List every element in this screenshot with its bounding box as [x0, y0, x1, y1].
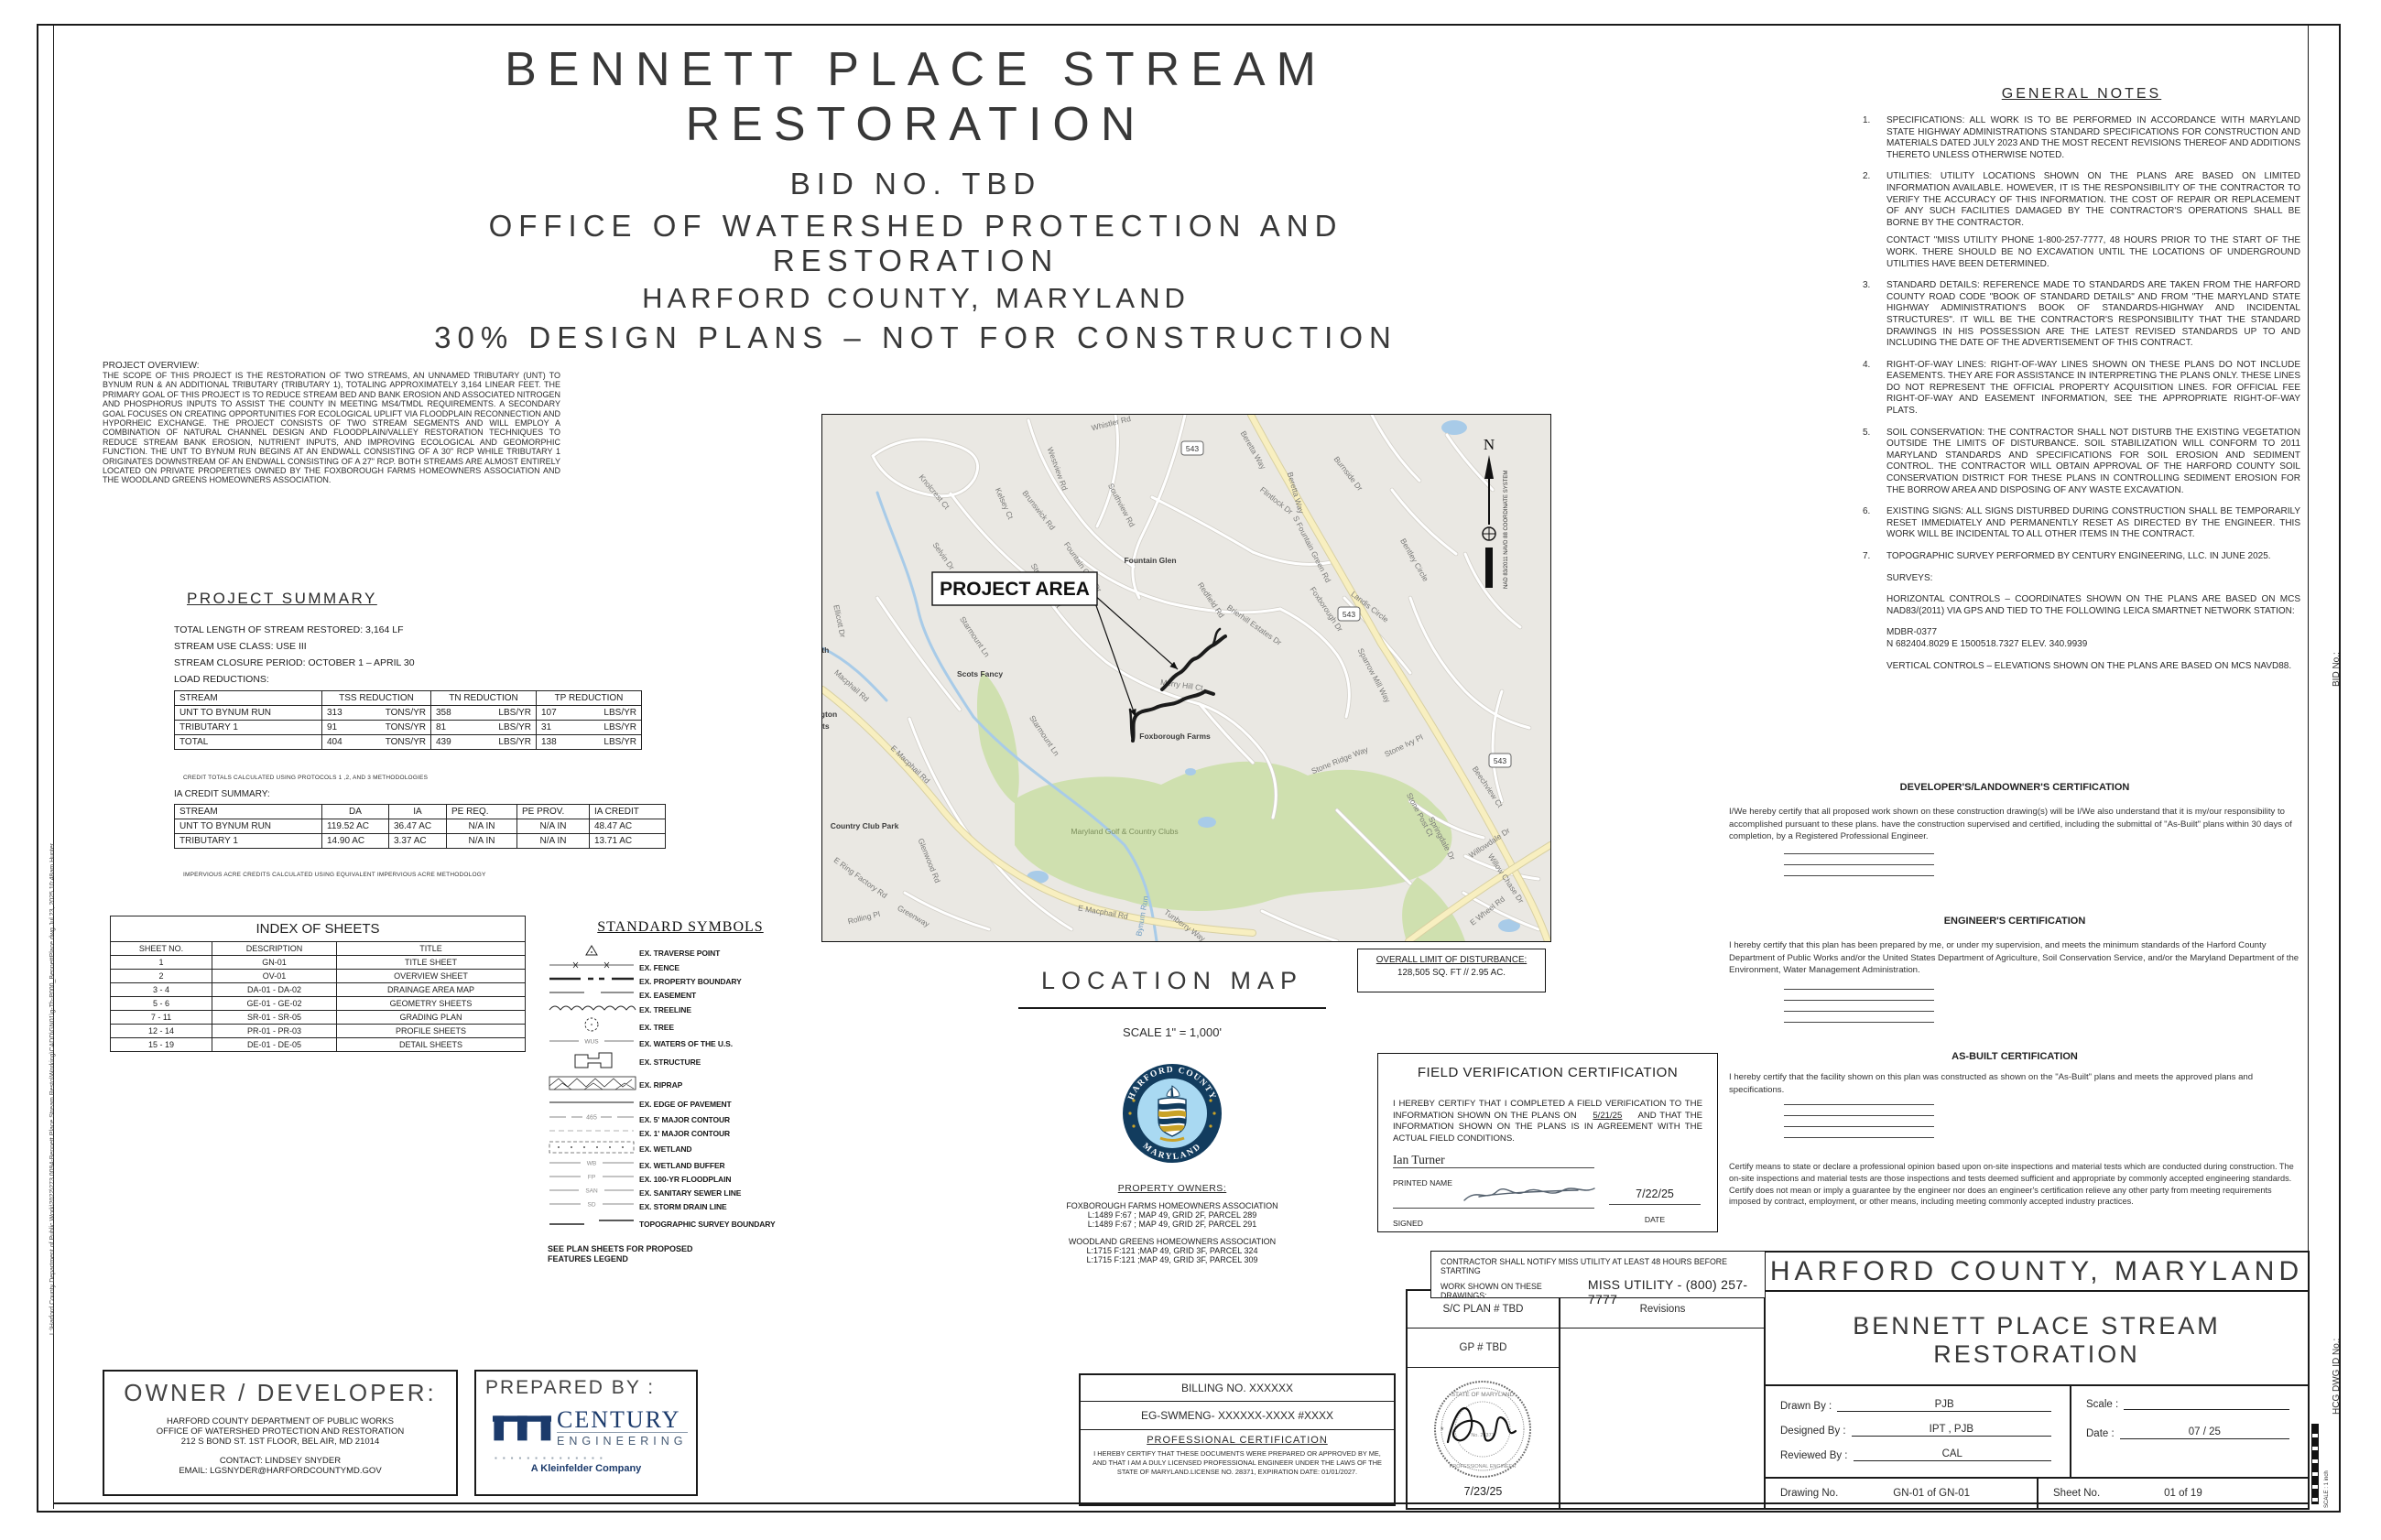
designed-by-row: Designed By :IPT , PJB [1780, 1424, 2051, 1437]
lod-box: OVERALL LIMIT OF DISTURBANCE: 128,505 SQ… [1357, 949, 1546, 992]
tb-county: HARFORD COUNTY, MARYLAND [1766, 1253, 2308, 1292]
sheet-title: BENNETT PLACE STREAM RESTORATION [385, 42, 1447, 152]
storm-drain-symbol: SD [548, 1198, 639, 1215]
miss-utility-phone: MISS UTILITY - (800) 257-7777 [1588, 1277, 1765, 1307]
ps-line-3: STREAM CLOSURE PERIOD: OCTOBER 1 – APRIL… [174, 657, 415, 668]
general-notes-title: GENERAL NOTES [2002, 86, 2161, 102]
general-note: 2.UTILITIES: UTILITY LOCATIONS SHOWN ON … [1863, 171, 2300, 229]
location-map-scale: SCALE 1" = 1,000' [1007, 1025, 1337, 1039]
legend-row: EX. STRUCTURE [548, 1050, 813, 1074]
billing-no: BILLING NO. XXXXXX [1081, 1375, 1394, 1402]
table-row: 15 - 19DE-01 - DE-05DETAIL SHEETS [111, 1038, 526, 1052]
lod-value: 128,505 SQ. FT // 2.95 AC. [1358, 968, 1545, 978]
svg-text:FP: FP [588, 1175, 595, 1181]
miss-utility-line2-label: WORK SHOWN ON THESE DRAWINGS: [1441, 1282, 1581, 1300]
harford-county-seal: HARFORD COUNTY MARYLAND [1121, 1062, 1223, 1165]
col-header: IA CREDIT [590, 805, 666, 819]
century-arch-icon [493, 1408, 551, 1452]
col-header: PE REQ. [447, 805, 517, 819]
fv-date-value: 7/22/25 [1609, 1188, 1701, 1200]
professional-cert-body: I HEREBY CERTIFY THAT THESE DOCUMENTS WE… [1088, 1449, 1386, 1477]
owner-line: L:1489 F:67 ; MAP 49, GRID 2F, PARCEL 29… [1035, 1220, 1310, 1229]
svg-text:SD: SD [587, 1202, 595, 1209]
logo-dots: ▪▪▪▪▪▪▪▪▪▪▪▪▪▪ [495, 1454, 696, 1462]
ps-line-4: LOAD REDUCTIONS: [174, 674, 269, 685]
location-map: 543 543 543 Fountain GlenScots FancyFoxb… [821, 414, 1551, 942]
property-owners-heading: PROPERTY OWNERS: [1035, 1183, 1310, 1194]
standard-symbols-title: STANDARD SYMBOLS [548, 919, 813, 936]
century-logo: CENTURY ENGINEERING [493, 1408, 696, 1452]
tb-project: BENNETT PLACE STREAM RESTORATION [1766, 1292, 2308, 1369]
title-sheet: L:\Harford County Department of Public W… [0, 0, 2381, 1540]
col-header: DESCRIPTION [212, 942, 337, 956]
project-summary-heading: PROJECT SUMMARY [187, 590, 377, 608]
survey-boundary-symbol [548, 1215, 639, 1234]
developer-signature-lines [1784, 853, 1934, 886]
location-map-title: LOCATION MAP [1007, 967, 1337, 995]
engineer-cert-title: ENGINEER'S CERTIFICATION [1729, 916, 2300, 927]
legend-row: EX. TREELINE [548, 1002, 813, 1017]
table-row: UNT TO BYNUM RUN 313TONS/YR 358LBS/YR 10… [175, 706, 642, 721]
surveys-label: SURVEYS: [1886, 573, 2300, 585]
engineer-cert-body: I hereby certify that this plan has been… [1729, 939, 2300, 977]
map-label: Country Club Park [831, 821, 899, 830]
field-verification-title: FIELD VERIFICATION CERTIFICATION [1378, 1065, 1717, 1080]
ia-table-footnote: IMPERVIOUS ACRE CREDITS CALCULATED USING… [183, 872, 486, 878]
gp-cell: GP # TBD [1408, 1329, 1559, 1368]
col-header: TITLE [337, 942, 526, 956]
map-label: Fountain Glen [1124, 556, 1176, 565]
svg-text:WUS: WUS [584, 1039, 599, 1046]
project-area-label: PROJECT AREA [940, 579, 1090, 600]
miss-utility-line1: CONTRACTOR SHALL NOTIFY MISS UTILITY AT … [1441, 1257, 1765, 1275]
billing-code: EG-SWMENG- XXXXXX-XXXX #XXXX [1081, 1402, 1394, 1430]
bid-no-label: BID No.: [2332, 652, 2342, 687]
developer-cert-title: DEVELOPER'S/LANDOWNER'S CERTIFICATION [1729, 782, 2300, 793]
sheet-no-value: 01 of 19 [2164, 1488, 2202, 1499]
vertical-controls-note: VERTICAL CONTROLS – ELEVATIONS SHOWN ON … [1886, 661, 2300, 673]
location-map-underline [1018, 1007, 1326, 1009]
owner-developer-heading: OWNER / DEVELOPER: [104, 1379, 456, 1407]
table-row: 7 - 11SR-01 - SR-05GRADING PLAN [111, 1011, 526, 1025]
owner-line: L:1715 F:121 ;MAP 49, GRID 3F, PARCEL 30… [1035, 1255, 1310, 1264]
index-of-sheets-table: INDEX OF SHEETS SHEET NO. DESCRIPTION TI… [110, 916, 526, 1052]
col-header: STREAM [175, 805, 322, 819]
legend-row: SD EX. STORM DRAIN LINE [548, 1199, 813, 1213]
bid-no-line: BID NO. TBD [385, 167, 1447, 201]
svg-text:543: 543 [1186, 444, 1199, 453]
owner-line: 212 S BOND ST. 1ST FLOOR, BEL AIR, MD 21… [104, 1437, 456, 1447]
col-header: PE PROV. [517, 805, 590, 819]
owner-name: FOXBOROUGH FARMS HOMEOWNERS ASSOCIATION [1035, 1201, 1310, 1210]
map-label: Heights [822, 721, 830, 731]
date-row: Date :07 / 25 [2086, 1426, 2289, 1439]
miss-utility-box: CONTRACTOR SHALL NOTIFY MISS UTILITY AT … [1430, 1251, 1766, 1298]
asbuilt-signature-lines [1784, 1104, 1934, 1148]
general-note: 1.SPECIFICATIONS: ALL WORK IS TO BE PERF… [1863, 115, 2300, 161]
svg-text:543: 543 [1494, 756, 1506, 765]
table-row: 12 - 14PR-01 - PR-03PROFILE SHEETS [111, 1025, 526, 1038]
title-block: HARFORD COUNTY, MARYLAND BENNETT PLACE S… [1764, 1251, 2310, 1510]
table-row: TRIBUTARY 1 91TONS/YR 81LBS/YR 31LBS/YR [175, 721, 642, 735]
datum-note: NAD 83/2011 NAVD 88 COORDINATE SYSTEM [1504, 471, 1509, 589]
table-row: TOTAL 404TONS/YR 439LBS/YR 138LBS/YR [175, 735, 642, 750]
prepared-by-heading: PREPARED BY : [485, 1377, 696, 1399]
ia-credit-table: STREAM DA IA PE REQ. PE PROV. IA CREDIT … [174, 804, 666, 849]
general-note: 3.STANDARD DETAILS: REFERENCE MADE TO ST… [1863, 280, 2300, 350]
general-note: 4.RIGHT-OF-WAY LINES: RIGHT-OF-WAY LINES… [1863, 360, 2300, 418]
map-label: Washington [822, 710, 837, 719]
table-row: UNT TO BYNUM RUN 119.52 AC 36.47 AC N/A … [175, 819, 666, 834]
drawing-no-value: GN-01 of GN-01 [1893, 1488, 1970, 1499]
fv-printed-name: Ian Turner [1393, 1153, 1594, 1167]
ps-line-2: STREAM USE CLASS: USE III [174, 641, 307, 652]
col-header: SHEET NO. [111, 942, 212, 956]
century-brand2: ENGINEERING [557, 1432, 688, 1448]
legend-row: TOPOGRAPHIC SURVEY BOUNDARY [548, 1213, 813, 1235]
tb-project-cell: BENNETT PLACE STREAM RESTORATION [1766, 1292, 2308, 1386]
table-row: TRIBUTARY 1 14.90 AC 3.37 AC N/A IN N/A … [175, 834, 666, 849]
svg-text:STATE OF MARYLAND: STATE OF MARYLAND [1451, 1392, 1515, 1398]
legend-row: EX. WETLAND [548, 1140, 813, 1158]
route-shield: 543 [1338, 607, 1360, 621]
edge-scale-label: SCALE : 1 inch [2324, 1470, 2330, 1508]
svg-text:543: 543 [1343, 610, 1355, 619]
horizontal-controls-note: HORIZONTAL CONTROLS – COORDINATES SHOWN … [1886, 594, 2300, 617]
col-header: STREAM [175, 691, 322, 706]
load-reductions-table: STREAM TSS REDUCTION TN REDUCTION TP RED… [174, 690, 642, 750]
office-line: OFFICE OF WATERSHED PROTECTION AND RESTO… [385, 209, 1447, 278]
drawing-no-label: Drawing No. [1780, 1488, 1838, 1499]
drawn-by-row: Drawn By :PJB [1780, 1399, 2051, 1412]
table-row: 2OV-01OVERVIEW SHEET [111, 970, 526, 983]
scale-row: Scale : [2086, 1399, 2289, 1410]
svg-text:WB: WB [587, 1161, 596, 1167]
owner-line: L:1715 F:121 ;MAP 49, GRID 3F, PARCEL 32… [1035, 1246, 1310, 1255]
century-brand: CENTURY [557, 1408, 688, 1432]
century-tagline: A Kleinfelder Company [476, 1463, 696, 1474]
prepared-by-box: PREPARED BY : CENTURY ENGINEERING ▪▪▪▪▪▪… [474, 1370, 698, 1496]
ps-line-1: TOTAL LENGTH OF STREAM RESTORED: 3,164 L… [174, 624, 404, 635]
sheet-no-label: Sheet No. [2053, 1488, 2100, 1499]
general-note: 5.SOIL CONSERVATION: THE CONTRACTOR SHAL… [1863, 428, 2300, 497]
structure-symbol [548, 1049, 639, 1076]
col-header: TP REDUCTION [537, 691, 642, 706]
fv-signature [1461, 1182, 1598, 1206]
station-coords: N 682404.8029 E 1500518.7327 ELEV. 340.9… [1886, 639, 2300, 651]
legend-row: EX. EASEMENT [548, 988, 813, 1002]
fv-date-label: DATE [1609, 1215, 1701, 1224]
design-status-line: 30% DESIGN PLANS – NOT FOR CONSTRUCTION [385, 320, 1447, 355]
billing-box: BILLING NO. XXXXXX EG-SWMENG- XXXXXX-XXX… [1079, 1373, 1396, 1506]
county-line: HARFORD COUNTY, MARYLAND [385, 282, 1447, 315]
general-note-extra: CONTACT "MISS UTILITY PHONE 1-800-257-77… [1886, 235, 2300, 270]
pe-seal: STATE OF MARYLAND PROFESSIONAL ENGINEER … [1428, 1375, 1538, 1483]
legend-row: EX. 1' MAJOR CONTOUR [548, 1126, 813, 1140]
table-row: 5 - 6GE-01 - GE-02GEOMETRY SHEETS [111, 997, 526, 1011]
project-overview-heading: PROJECT OVERVIEW: [103, 361, 560, 371]
owner-line: OFFICE OF WATERSHED PROTECTION AND RESTO… [104, 1426, 456, 1437]
table-row: 1GN-01TITLE SHEET [111, 956, 526, 970]
col-header: TN REDUCTION [431, 691, 537, 706]
seal-date: 7/23/25 [1408, 1485, 1559, 1498]
reviewed-by-row: Reviewed By :CAL [1780, 1448, 2051, 1461]
hcg-dwg-id-label: HCG DWG ID No.: [2332, 1339, 2342, 1415]
general-note: 7.TOPOGRAPHIC SURVEY PERFORMED BY CENTUR… [1863, 551, 2300, 563]
owner-developer-box: OWNER / DEVELOPER: HARFORD COUNTY DEPART… [103, 1370, 458, 1496]
station-id: MDBR-0377 [1886, 627, 2300, 639]
asbuilt-cert-body: I hereby certify that the facility shown… [1729, 1071, 2300, 1096]
legend-row: EX. RIPRAP [548, 1074, 813, 1096]
map-label: Foxborough Farms [1139, 732, 1211, 741]
professional-cert-title: PROFESSIONAL CERTIFICATION [1081, 1435, 1394, 1446]
svg-text:N: N [1484, 436, 1495, 453]
table-row: 3 - 4DA-01 - DA-02DRAINAGE AREA MAP [111, 983, 526, 997]
load-table-footnote: CREDIT TOTALS CALCULATED USING PROTOCOLS… [183, 775, 428, 781]
owner-email: EMAIL: LGSNYDER@HARFORDCOUNTYMD.GOV [104, 1466, 456, 1476]
fv-signed-label: SIGNED [1393, 1219, 1594, 1228]
svg-text:PROFESSIONAL ENGINEER: PROFESSIONAL ENGINEER [1450, 1464, 1517, 1470]
route-shield: 543 [1181, 441, 1203, 455]
asbuilt-cert-title: AS-BUILT CERTIFICATION [1729, 1051, 2300, 1062]
engineer-signature-lines [1784, 989, 1934, 1033]
file-path-note: L:\Harford County Department of Public W… [49, 843, 56, 1335]
owner-contact: CONTACT: LINDSEY SNYDER [104, 1456, 456, 1466]
col-header: IA [389, 805, 447, 819]
svg-text:*: * [1441, 1426, 1444, 1435]
lod-title: OVERALL LIMIT OF DISTURBANCE: [1358, 955, 1545, 965]
owner-line: L:1489 F:67 ; MAP 49, GRID 2F, PARCEL 28… [1035, 1210, 1310, 1220]
route-shield: 543 [1489, 754, 1511, 767]
col-header: TSS REDUCTION [322, 691, 431, 706]
legend-row: EX. TREE [548, 1017, 813, 1036]
map-label: Garth [822, 645, 829, 655]
svg-text:SAN: SAN [585, 1188, 598, 1195]
owner-name: WOODLAND GREENS HOMEOWNERS ASSOCIATION [1035, 1237, 1310, 1246]
general-note: 6.EXISTING SIGNS: ALL SIGNS DISTURBED DU… [1863, 506, 2300, 541]
map-label: Scots Fancy [957, 669, 1003, 678]
svg-text:No. 28371: No. 28371 [1471, 1433, 1494, 1438]
developer-cert-body: I/We hereby certify that all proposed wo… [1729, 806, 2300, 843]
svg-text:465: 465 [586, 1115, 597, 1122]
map-label: Maryland Golf & Country Clubs [1071, 827, 1178, 836]
col-header: DA [322, 805, 389, 819]
fv-date-inline: 5/21/25 [1580, 1111, 1635, 1121]
riprap-symbol [548, 1074, 639, 1097]
ia-credit-heading: IA CREDIT SUMMARY: [174, 789, 270, 799]
project-overview-body: THE SCOPE OF THIS PROJECT IS THE RESTORA… [103, 371, 560, 485]
owner-line: HARFORD COUNTY DEPARTMENT OF PUBLIC WORK… [104, 1416, 456, 1426]
index-title: INDEX OF SHEETS [111, 916, 526, 942]
title-block-left: S/C PLAN # TBD Revisions GP # TBD STATE … [1406, 1289, 1766, 1510]
symbols-note: SEE PLAN SHEETS FOR PROPOSED FEATURES LE… [548, 1244, 703, 1264]
edge-scale-bar [2311, 1424, 2319, 1504]
certify-definition-note: Certify means to state or declare a prof… [1729, 1161, 2300, 1208]
field-verification-box: FIELD VERIFICATION CERTIFICATION I HEREB… [1377, 1053, 1718, 1232]
